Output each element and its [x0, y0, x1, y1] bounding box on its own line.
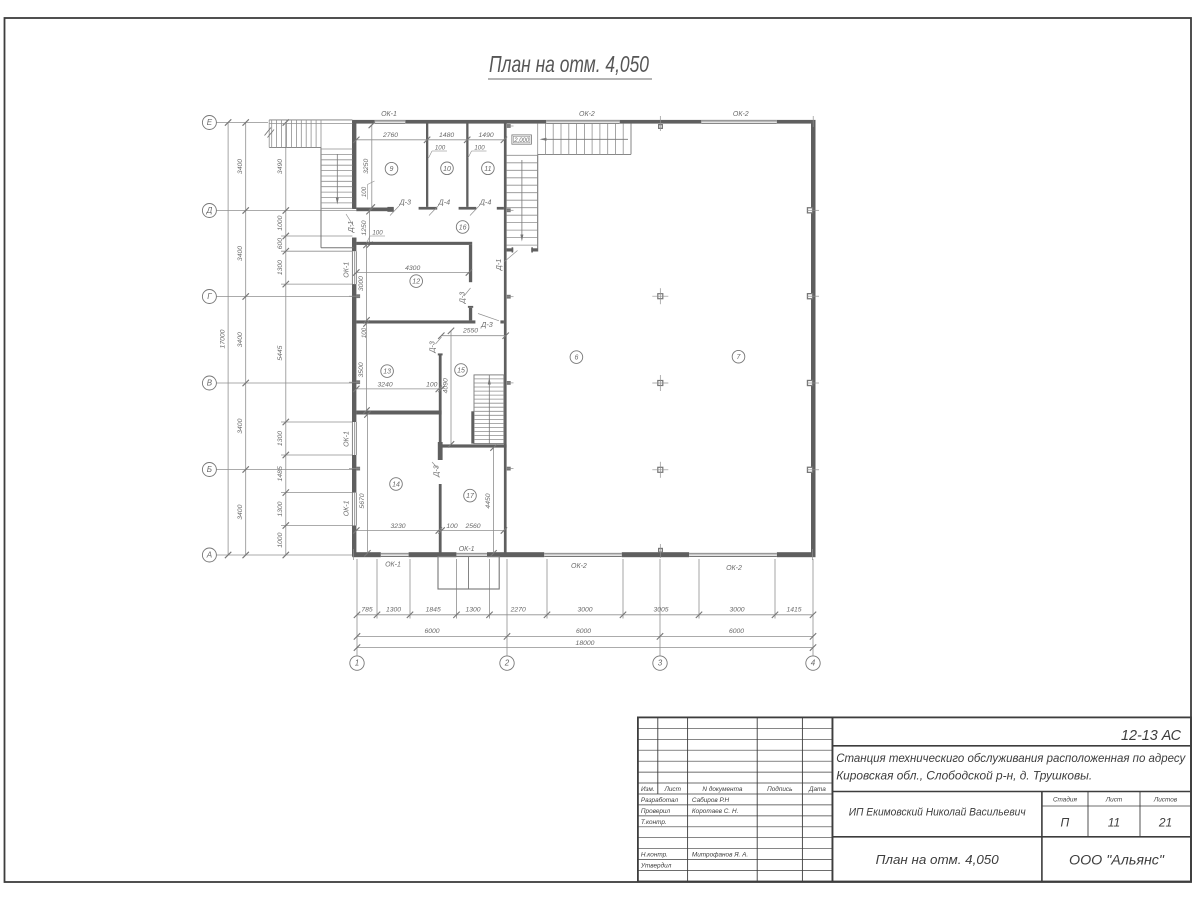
- svg-text:2760: 2760: [382, 132, 398, 139]
- svg-text:Дата: Дата: [808, 786, 826, 793]
- svg-text:ООО "Альянс": ООО "Альянс": [1069, 852, 1165, 868]
- svg-text:1300: 1300: [386, 607, 401, 614]
- svg-text:1480: 1480: [439, 132, 454, 139]
- svg-text:3400: 3400: [237, 159, 244, 174]
- svg-text:3250: 3250: [363, 159, 370, 174]
- svg-text:15: 15: [457, 368, 465, 375]
- svg-text:3400: 3400: [237, 246, 244, 261]
- svg-text:ОК-2: ОК-2: [733, 111, 749, 118]
- svg-text:1: 1: [355, 659, 359, 668]
- svg-text:1000: 1000: [277, 215, 284, 230]
- svg-text:ОК-1: ОК-1: [381, 111, 397, 118]
- svg-text:6000: 6000: [576, 628, 591, 635]
- svg-text:ОК-1: ОК-1: [343, 262, 350, 278]
- svg-text:ОК-2: ОК-2: [571, 563, 587, 570]
- svg-text:785: 785: [361, 607, 373, 614]
- svg-text:13: 13: [383, 369, 391, 376]
- svg-text:3: 3: [658, 659, 663, 668]
- svg-text:1300: 1300: [277, 431, 284, 446]
- svg-text:3400: 3400: [237, 504, 244, 519]
- svg-text:6000: 6000: [424, 628, 439, 635]
- svg-text:Б: Б: [207, 465, 212, 474]
- svg-text:1485: 1485: [277, 466, 284, 481]
- svg-text:2270: 2270: [510, 607, 526, 614]
- svg-text:1300: 1300: [277, 260, 284, 275]
- svg-text:Коротаев С. Н.: Коротаев С. Н.: [692, 808, 738, 815]
- svg-text:Н.контр.: Н.контр.: [641, 852, 668, 859]
- svg-text:Т.контр.: Т.контр.: [641, 819, 667, 826]
- svg-text:Г: Г: [207, 292, 212, 301]
- svg-text:А: А: [206, 551, 212, 560]
- svg-text:4450: 4450: [485, 493, 492, 508]
- svg-text:В: В: [207, 379, 213, 388]
- svg-text:Сабиров Р.Н: Сабиров Р.Н: [692, 796, 730, 804]
- svg-text:Лист: Лист: [663, 786, 681, 793]
- svg-text:Д-1: Д-1: [494, 259, 503, 271]
- svg-text:6: 6: [574, 355, 578, 362]
- svg-text:5670: 5670: [359, 493, 366, 508]
- svg-text:Е: Е: [207, 118, 213, 127]
- svg-text:12: 12: [412, 279, 420, 286]
- svg-text:ОК-1: ОК-1: [385, 562, 401, 569]
- svg-text:1000: 1000: [277, 532, 284, 547]
- svg-text:3000: 3000: [358, 276, 365, 291]
- svg-text:6000: 6000: [729, 628, 744, 635]
- svg-text:100: 100: [361, 186, 368, 197]
- svg-text:Кировская обл., Слободской р-н: Кировская обл., Слободской р-н, д. Трушк…: [836, 769, 1092, 783]
- svg-text:Станция техническиго обслужива: Станция техническиго обслуживания распол…: [836, 751, 1186, 765]
- svg-text:Утвердил: Утвердил: [640, 862, 672, 870]
- svg-text:17: 17: [466, 493, 475, 500]
- svg-text:Д-4: Д-4: [479, 198, 491, 207]
- svg-text:2: 2: [504, 659, 510, 668]
- svg-text:1845: 1845: [426, 607, 441, 614]
- svg-text:10: 10: [443, 166, 451, 173]
- svg-text:2560: 2560: [464, 523, 480, 530]
- svg-text:11: 11: [484, 166, 491, 173]
- svg-text:3000: 3000: [577, 607, 592, 614]
- svg-text:ОК-1: ОК-1: [459, 546, 475, 553]
- svg-text:ОК-1: ОК-1: [343, 431, 350, 447]
- svg-text:1300: 1300: [277, 501, 284, 516]
- svg-text:1250: 1250: [361, 220, 368, 235]
- svg-text:ОК-1: ОК-1: [343, 500, 350, 516]
- svg-text:3005: 3005: [653, 607, 668, 614]
- svg-text:Д: Д: [206, 206, 213, 215]
- svg-text:П: П: [1061, 816, 1070, 830]
- svg-text:3490: 3490: [277, 159, 284, 174]
- svg-text:100: 100: [372, 229, 383, 236]
- svg-text:План на отм. 4,050: План на отм. 4,050: [876, 852, 1000, 867]
- svg-text:4300: 4300: [405, 265, 420, 272]
- svg-text:1415: 1415: [786, 607, 801, 614]
- svg-text:9: 9: [390, 166, 394, 173]
- svg-text:Стадия: Стадия: [1053, 796, 1078, 804]
- svg-text:Разработал: Разработал: [641, 796, 679, 804]
- svg-text:Лист: Лист: [1105, 797, 1123, 804]
- svg-text:3500: 3500: [358, 362, 365, 377]
- svg-text:12-13 АС: 12-13 АС: [1121, 727, 1181, 744]
- svg-text:Д-3: Д-3: [480, 320, 492, 329]
- svg-text:1490: 1490: [479, 132, 494, 139]
- svg-text:2,000: 2,000: [513, 138, 530, 144]
- svg-text:Д-1: Д-1: [346, 221, 355, 233]
- svg-text:Изм.: Изм.: [641, 786, 655, 793]
- svg-text:Проверил: Проверил: [641, 808, 671, 815]
- svg-text:100: 100: [446, 523, 458, 530]
- svg-text:3240: 3240: [378, 381, 393, 388]
- svg-text:3230: 3230: [390, 523, 405, 530]
- svg-text:4090: 4090: [442, 378, 449, 393]
- svg-text:Митрофанов Я. А.: Митрофанов Я. А.: [692, 852, 748, 859]
- svg-text:Д-3: Д-3: [427, 341, 436, 353]
- svg-text:5445: 5445: [277, 345, 284, 360]
- svg-text:Листов: Листов: [1153, 797, 1178, 804]
- svg-text:17000: 17000: [220, 329, 227, 348]
- svg-text:100: 100: [426, 381, 438, 388]
- svg-text:ОК-2: ОК-2: [726, 565, 742, 572]
- svg-text:16: 16: [459, 225, 467, 232]
- svg-text:600: 600: [277, 238, 284, 250]
- svg-text:3000: 3000: [729, 607, 744, 614]
- svg-text:18000: 18000: [576, 640, 595, 647]
- svg-text:Д-3: Д-3: [432, 465, 441, 477]
- svg-text:Подпись: Подпись: [767, 785, 792, 793]
- svg-text:План на отм. 4,050: План на отм. 4,050: [489, 51, 649, 77]
- svg-text:Д-3: Д-3: [458, 292, 467, 304]
- svg-text:Д-3: Д-3: [399, 198, 411, 207]
- svg-text:1300: 1300: [465, 607, 480, 614]
- svg-text:Д-4: Д-4: [438, 198, 450, 207]
- svg-text:100: 100: [435, 145, 446, 152]
- svg-text:14: 14: [392, 482, 400, 489]
- svg-text:11: 11: [1108, 816, 1120, 830]
- svg-text:100: 100: [474, 145, 485, 152]
- svg-text:4: 4: [811, 659, 816, 668]
- svg-text:N документа: N документа: [702, 785, 742, 793]
- svg-text:21: 21: [1158, 816, 1172, 830]
- svg-text:3400: 3400: [237, 418, 244, 433]
- svg-text:3400: 3400: [237, 332, 244, 347]
- svg-text:2550: 2550: [462, 328, 478, 335]
- svg-text:100: 100: [361, 327, 368, 338]
- svg-text:ИП Екимовский Николай Васильев: ИП Екимовский Николай Васильевич: [849, 807, 1026, 819]
- svg-text:ОК-2: ОК-2: [579, 111, 595, 118]
